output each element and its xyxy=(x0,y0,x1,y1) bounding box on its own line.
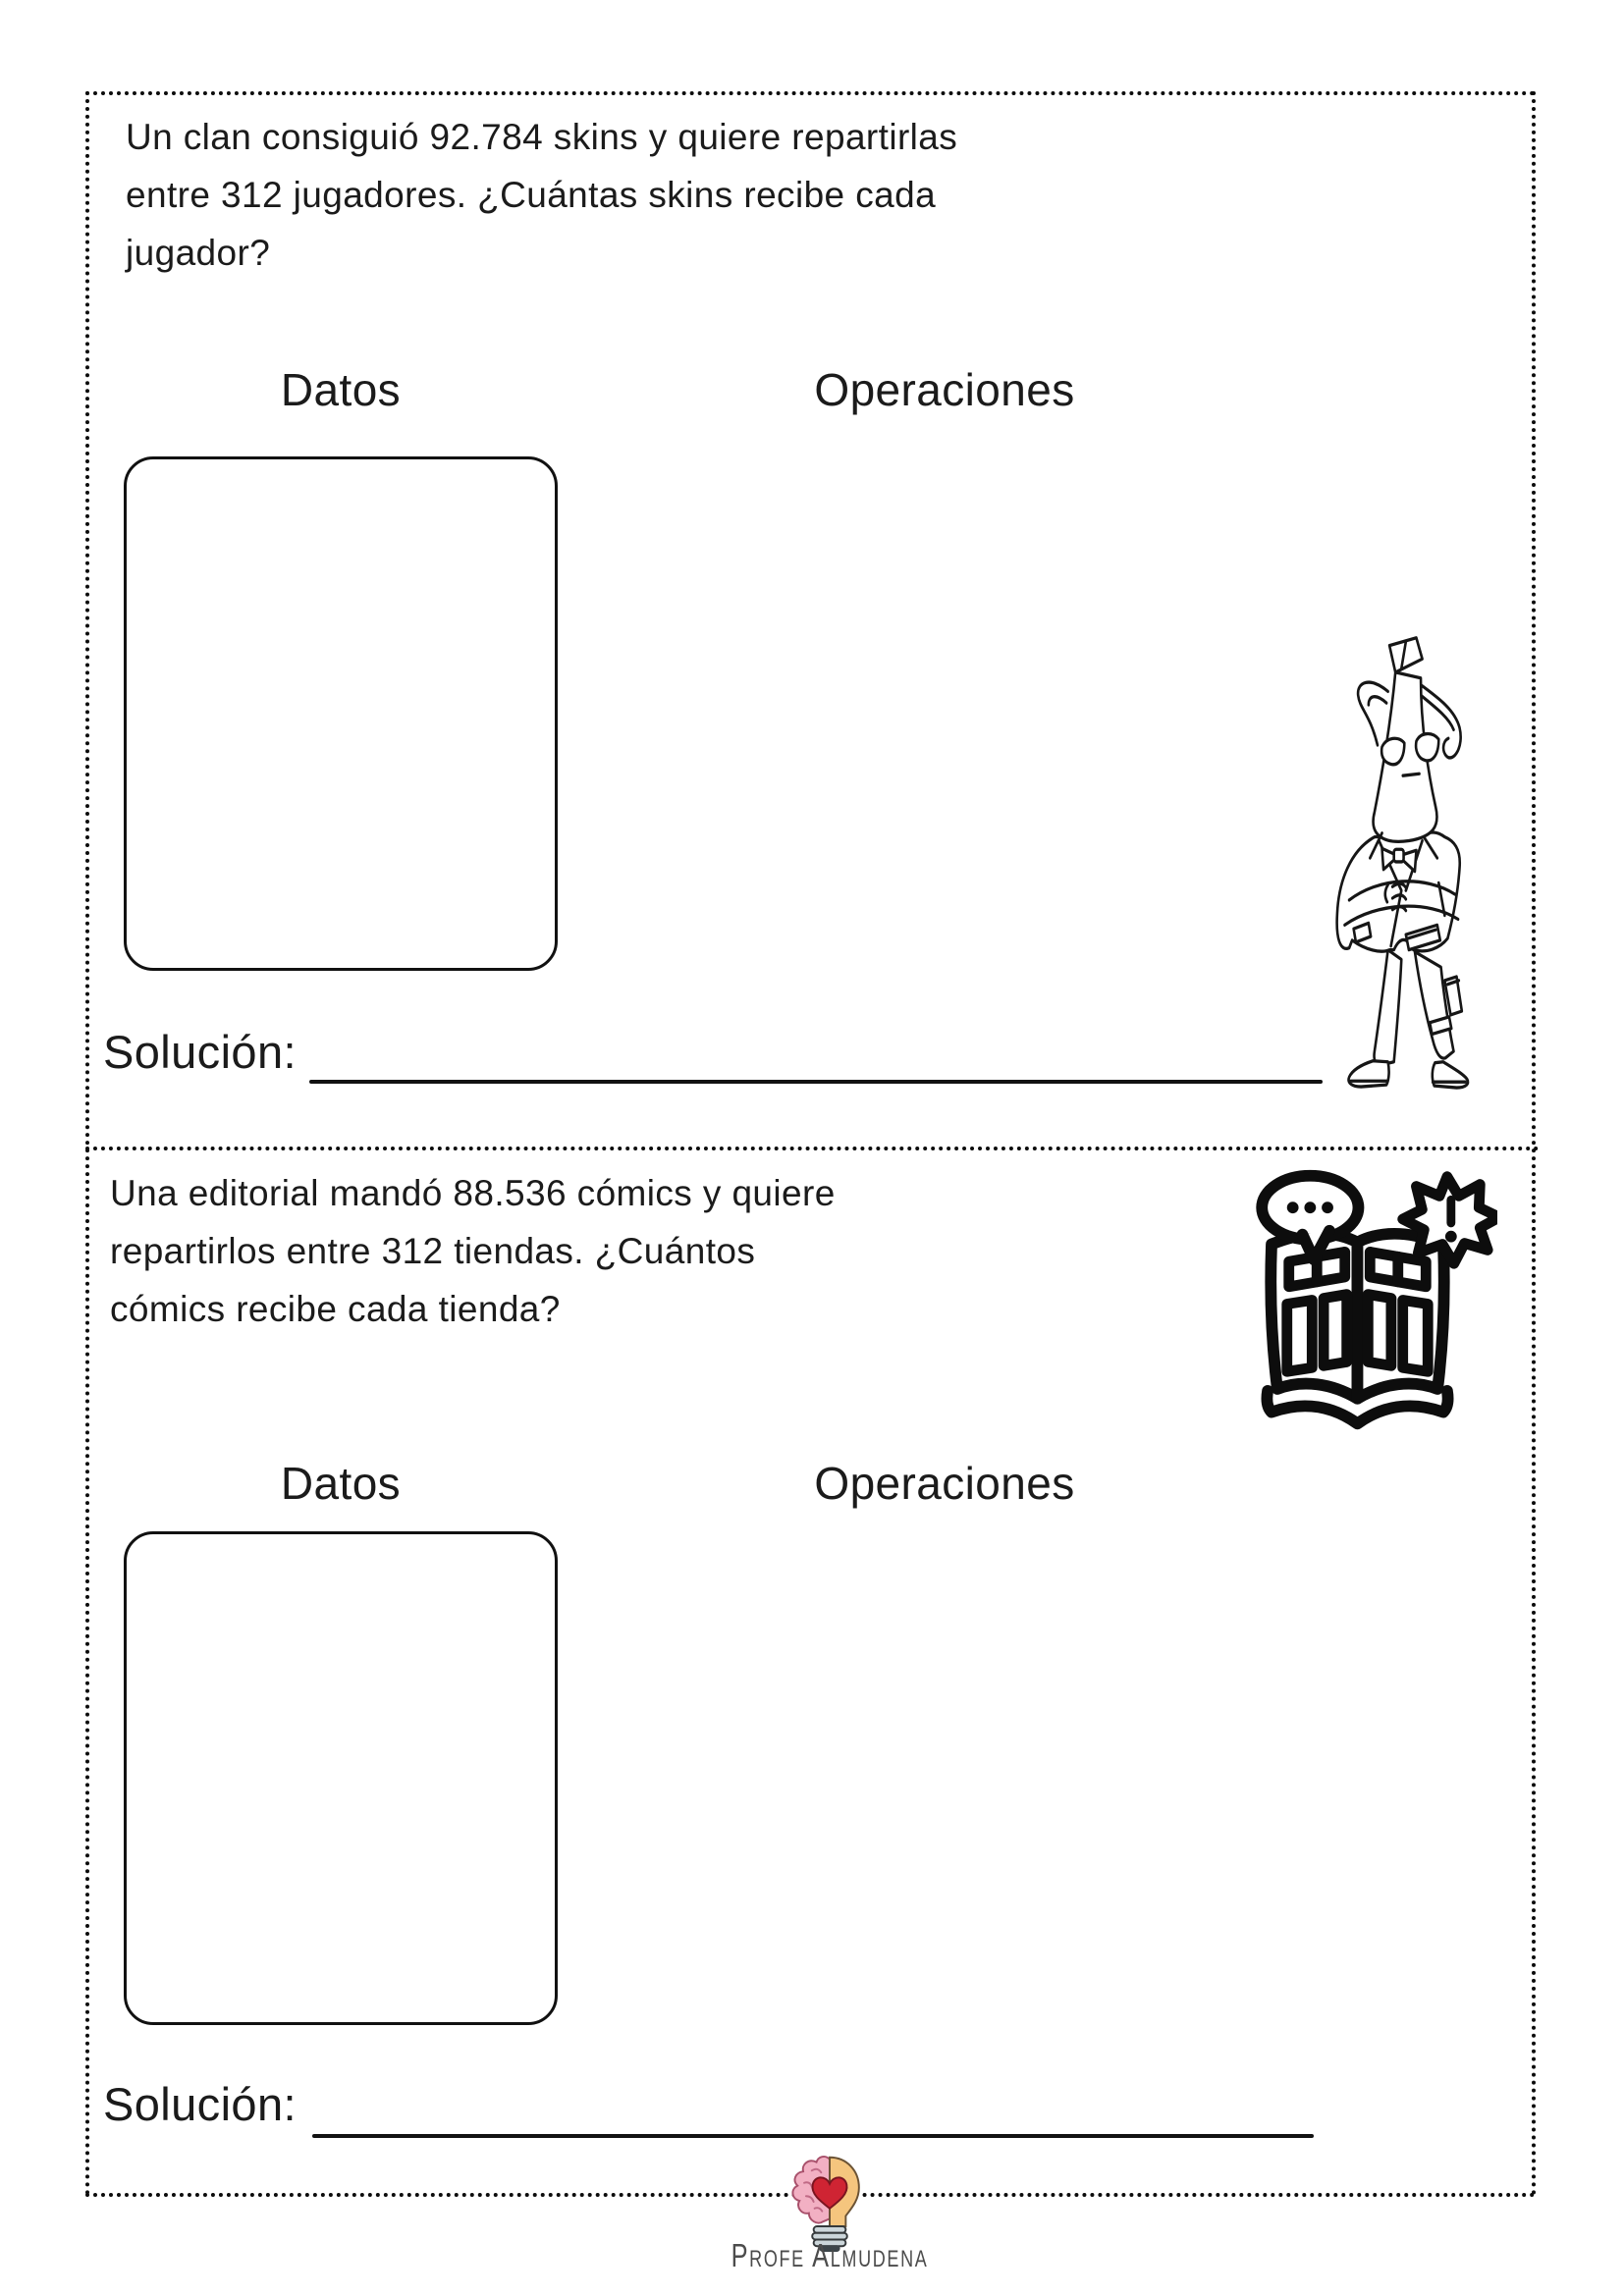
brand-name: Profe Almudena xyxy=(669,2237,991,2275)
problem2-datos-label: Datos xyxy=(124,1461,558,1506)
problem1-statement: Un clan consiguió 92.784 skins y quiere … xyxy=(126,108,957,282)
problem2-operaciones-label: Operaciones xyxy=(733,1461,1156,1506)
problem1-datos-label: Datos xyxy=(124,367,558,412)
problem1-solucion-answer-line[interactable] xyxy=(309,1080,1323,1084)
problem1-solucion-label: Solución: xyxy=(103,1029,297,1075)
banana-agent-character-icon xyxy=(1306,630,1492,1090)
problem2-line3: cómics recibe cada tienda? xyxy=(110,1280,836,1338)
problem1-operaciones-label: Operaciones xyxy=(733,367,1156,412)
problem1-datos-answer-box[interactable] xyxy=(124,456,558,971)
problem2-statement: Una editorial mandó 88.536 cómics y quie… xyxy=(110,1164,836,1338)
problem1-line1: Un clan consiguió 92.784 skins y quiere … xyxy=(126,108,957,166)
problem2-datos-answer-box[interactable] xyxy=(124,1531,558,2025)
problem1-line2: entre 312 jugadores. ¿Cuántas skins reci… xyxy=(126,166,957,224)
problem2-solucion-answer-line[interactable] xyxy=(312,2134,1314,2138)
worksheet-page: Un clan consiguió 92.784 skins y quiere … xyxy=(0,0,1624,2296)
problem2-solucion-label: Solución: xyxy=(103,2081,297,2127)
comic-book-icon xyxy=(1218,1168,1497,1435)
section-divider-dotted-line xyxy=(85,1147,1540,1150)
problem2-line2: repartirlos entre 312 tiendas. ¿Cuántos xyxy=(110,1222,836,1280)
problem2-line1: Una editorial mandó 88.536 cómics y quie… xyxy=(110,1164,836,1222)
problem1-line3: jugador? xyxy=(126,224,957,282)
